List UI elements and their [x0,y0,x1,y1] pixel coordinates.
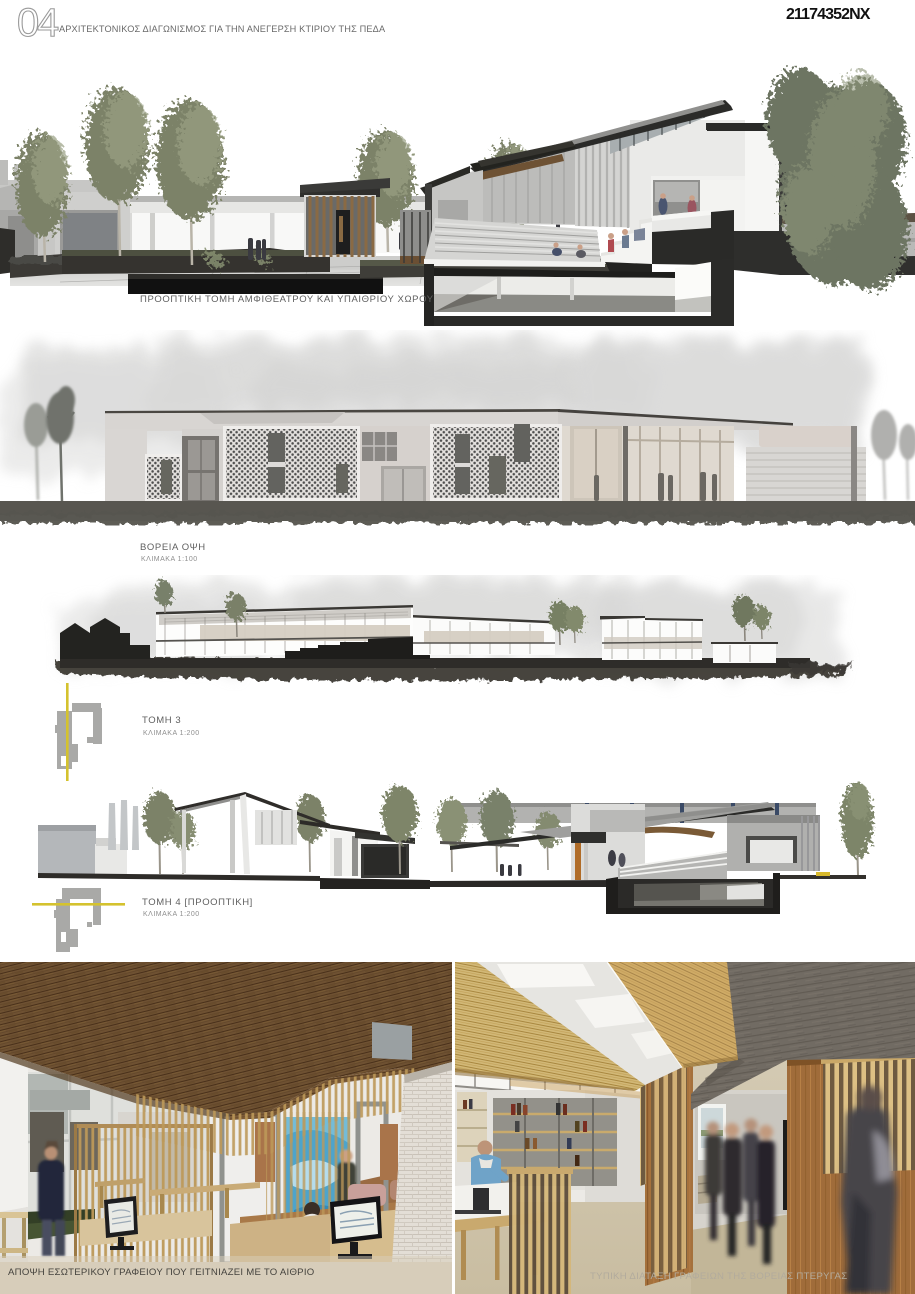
svg-text:ΑΠΟΨΗ ΕΣΩΤΕΡΙΚΟΥ ΓΡΑΦΕΙΟΥ ΠΟΥ: ΑΠΟΨΗ ΕΣΩΤΕΡΙΚΟΥ ΓΡΑΦΕΙΟΥ ΠΟΥ ΓΕΙΤΝΙΑΖΕΙ… [8,1267,314,1278]
svg-text:ΤΥΠΙΚΗ ΔΙΑΤΑΞΗ ΓΡΑΦΕΙΩΝ ΤΗΣ ΒΟ: ΤΥΠΙΚΗ ΔΙΑΤΑΞΗ ΓΡΑΦΕΙΩΝ ΤΗΣ ΒΟΡΕΙΑΣ ΠΤΕΡ… [590,1271,847,1282]
